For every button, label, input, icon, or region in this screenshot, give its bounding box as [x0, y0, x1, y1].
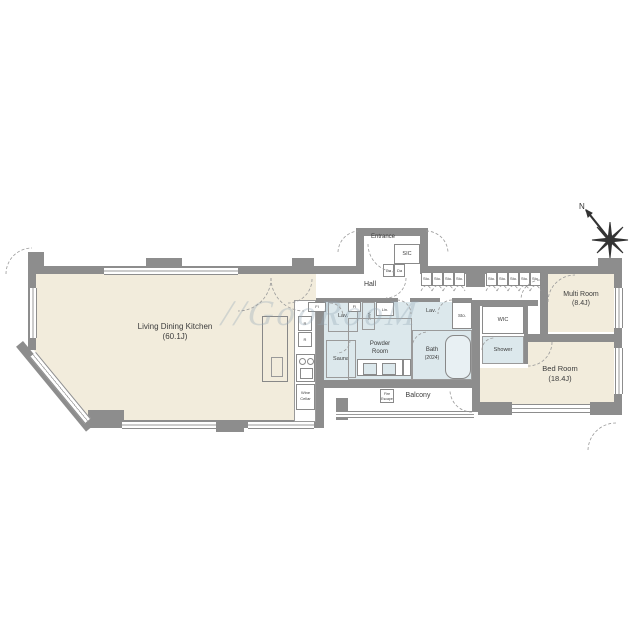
storage-b-5-label: Sto. [531, 277, 540, 282]
vanity-side-unit [403, 359, 411, 376]
window-ldk-bottom-b [248, 421, 314, 429]
entrance-label: Entrance [358, 234, 408, 242]
pillar-top-2 [146, 258, 182, 266]
storage-a-3-label: Sto. [444, 277, 453, 282]
cooktop [296, 354, 315, 382]
pillar-top-3 [292, 258, 314, 266]
hall-label: Hall [352, 280, 388, 289]
storage-b-4: Sto. [519, 272, 530, 286]
powder-room-label-1: Powder [349, 341, 411, 349]
storage-a-2: Sto. [432, 272, 443, 286]
pillar-storage [466, 270, 485, 287]
wall-bed-bottom-right [590, 402, 622, 415]
sic-label: SIC [395, 251, 419, 258]
pillar-top-corner-left [28, 252, 44, 266]
window-multi-right [615, 288, 623, 328]
wall-right-top [614, 266, 622, 288]
compass-rose: N [578, 200, 636, 260]
island-sink [271, 357, 283, 377]
powder-room-label-2: Room [349, 349, 411, 357]
shoe-box-1-label: Da [384, 269, 393, 274]
compass-north-label: N [579, 202, 585, 211]
wine-cellar: Wine Cellar [296, 384, 315, 410]
storage-b-2-label: Sto. [498, 277, 507, 282]
shower-room: Shower [482, 336, 524, 364]
fire-escape-hatch: Fire Escape [380, 389, 394, 403]
multi-room-size: (8.4J) [546, 299, 616, 308]
wall-right-mid [614, 328, 622, 348]
sink-1 [363, 363, 377, 375]
storage-b-3: Sto. [508, 272, 519, 286]
storage-a-1: Sto. [421, 272, 432, 286]
shoe-box-1: Da [383, 264, 394, 277]
storage-right-label: Sto. [453, 313, 471, 319]
storage-a-2-label: Sto. [433, 277, 442, 282]
sic-closet: SIC [394, 244, 420, 264]
fridge-2: R [298, 332, 312, 347]
wine-cellar-label-1: Wine [297, 391, 314, 396]
shower-label: Shower [483, 347, 523, 354]
shoe-box-2: Da [394, 264, 405, 277]
bed-room-name: Bed Room [505, 364, 615, 374]
wall-wet-bottom [316, 380, 480, 388]
multi-room-name: Multi Room [546, 290, 616, 299]
balcony-label: Balcony [396, 391, 440, 400]
window-ldk-left [29, 288, 37, 338]
window-bed-right [615, 348, 623, 394]
watermark-text: GooRooM [246, 293, 421, 333]
floor-plan: Entrance SIC Da Da Hall Sto. Sto. Sto. S… [0, 0, 639, 640]
storage-b-3-label: Sto. [509, 277, 518, 282]
storage-b-2: Sto. [497, 272, 508, 286]
pillar-diagonal-foot [88, 410, 124, 428]
balcony-railing [336, 411, 474, 418]
storage-b-5: Sto. [530, 272, 541, 286]
bath-size-label: (2024) [415, 355, 449, 362]
storage-b-1: Sto. [486, 272, 497, 286]
wic-label: WIC [483, 317, 523, 324]
storage-a-4: Sto. [454, 272, 465, 286]
multi-room-label: Multi Room (8.4J) [546, 290, 616, 308]
storage-b-4-label: Sto. [520, 277, 529, 282]
wall-bed-top [528, 334, 622, 342]
bath-label: Bath [415, 347, 449, 355]
window-ldk-top [104, 267, 238, 275]
storage-right: Sto. [452, 302, 472, 329]
window-ldk-bottom-a [122, 421, 216, 429]
wall-bed-bottom-left [478, 402, 512, 415]
storage-a-1-label: Sto. [422, 277, 431, 282]
bed-room-size: (18.4J) [505, 374, 615, 384]
fire-escape-label-2: Escape [381, 397, 393, 402]
watermark: //GooRooM [220, 292, 421, 334]
bathtub [445, 335, 471, 379]
storage-a-4-label: Sto. [455, 277, 464, 282]
sink-2 [382, 363, 396, 375]
oven [300, 368, 313, 379]
wall-balcony-divider [472, 300, 480, 412]
wine-cellar-label-2: Cellar [297, 397, 314, 402]
storage-b-1-label: Sto. [487, 277, 496, 282]
burner-1 [299, 358, 306, 365]
storage-a-3: Sto. [443, 272, 454, 286]
fridge-2-label: R [299, 338, 311, 343]
wall-entrance-right [420, 228, 428, 274]
window-bed-bottom [512, 404, 590, 413]
vanity-counter [357, 359, 403, 376]
burner-2 [307, 358, 314, 365]
pillar-ldk-bottom [216, 420, 244, 432]
shoe-box-2-label: Da [395, 269, 404, 274]
compass-icon: N [578, 200, 636, 260]
fire-escape-label-1: Fire [381, 392, 393, 397]
wic: WIC [482, 306, 524, 334]
bath-room: Bath (2024) [412, 330, 472, 380]
bed-room-label: Bed Room (18.4J) [505, 364, 615, 384]
